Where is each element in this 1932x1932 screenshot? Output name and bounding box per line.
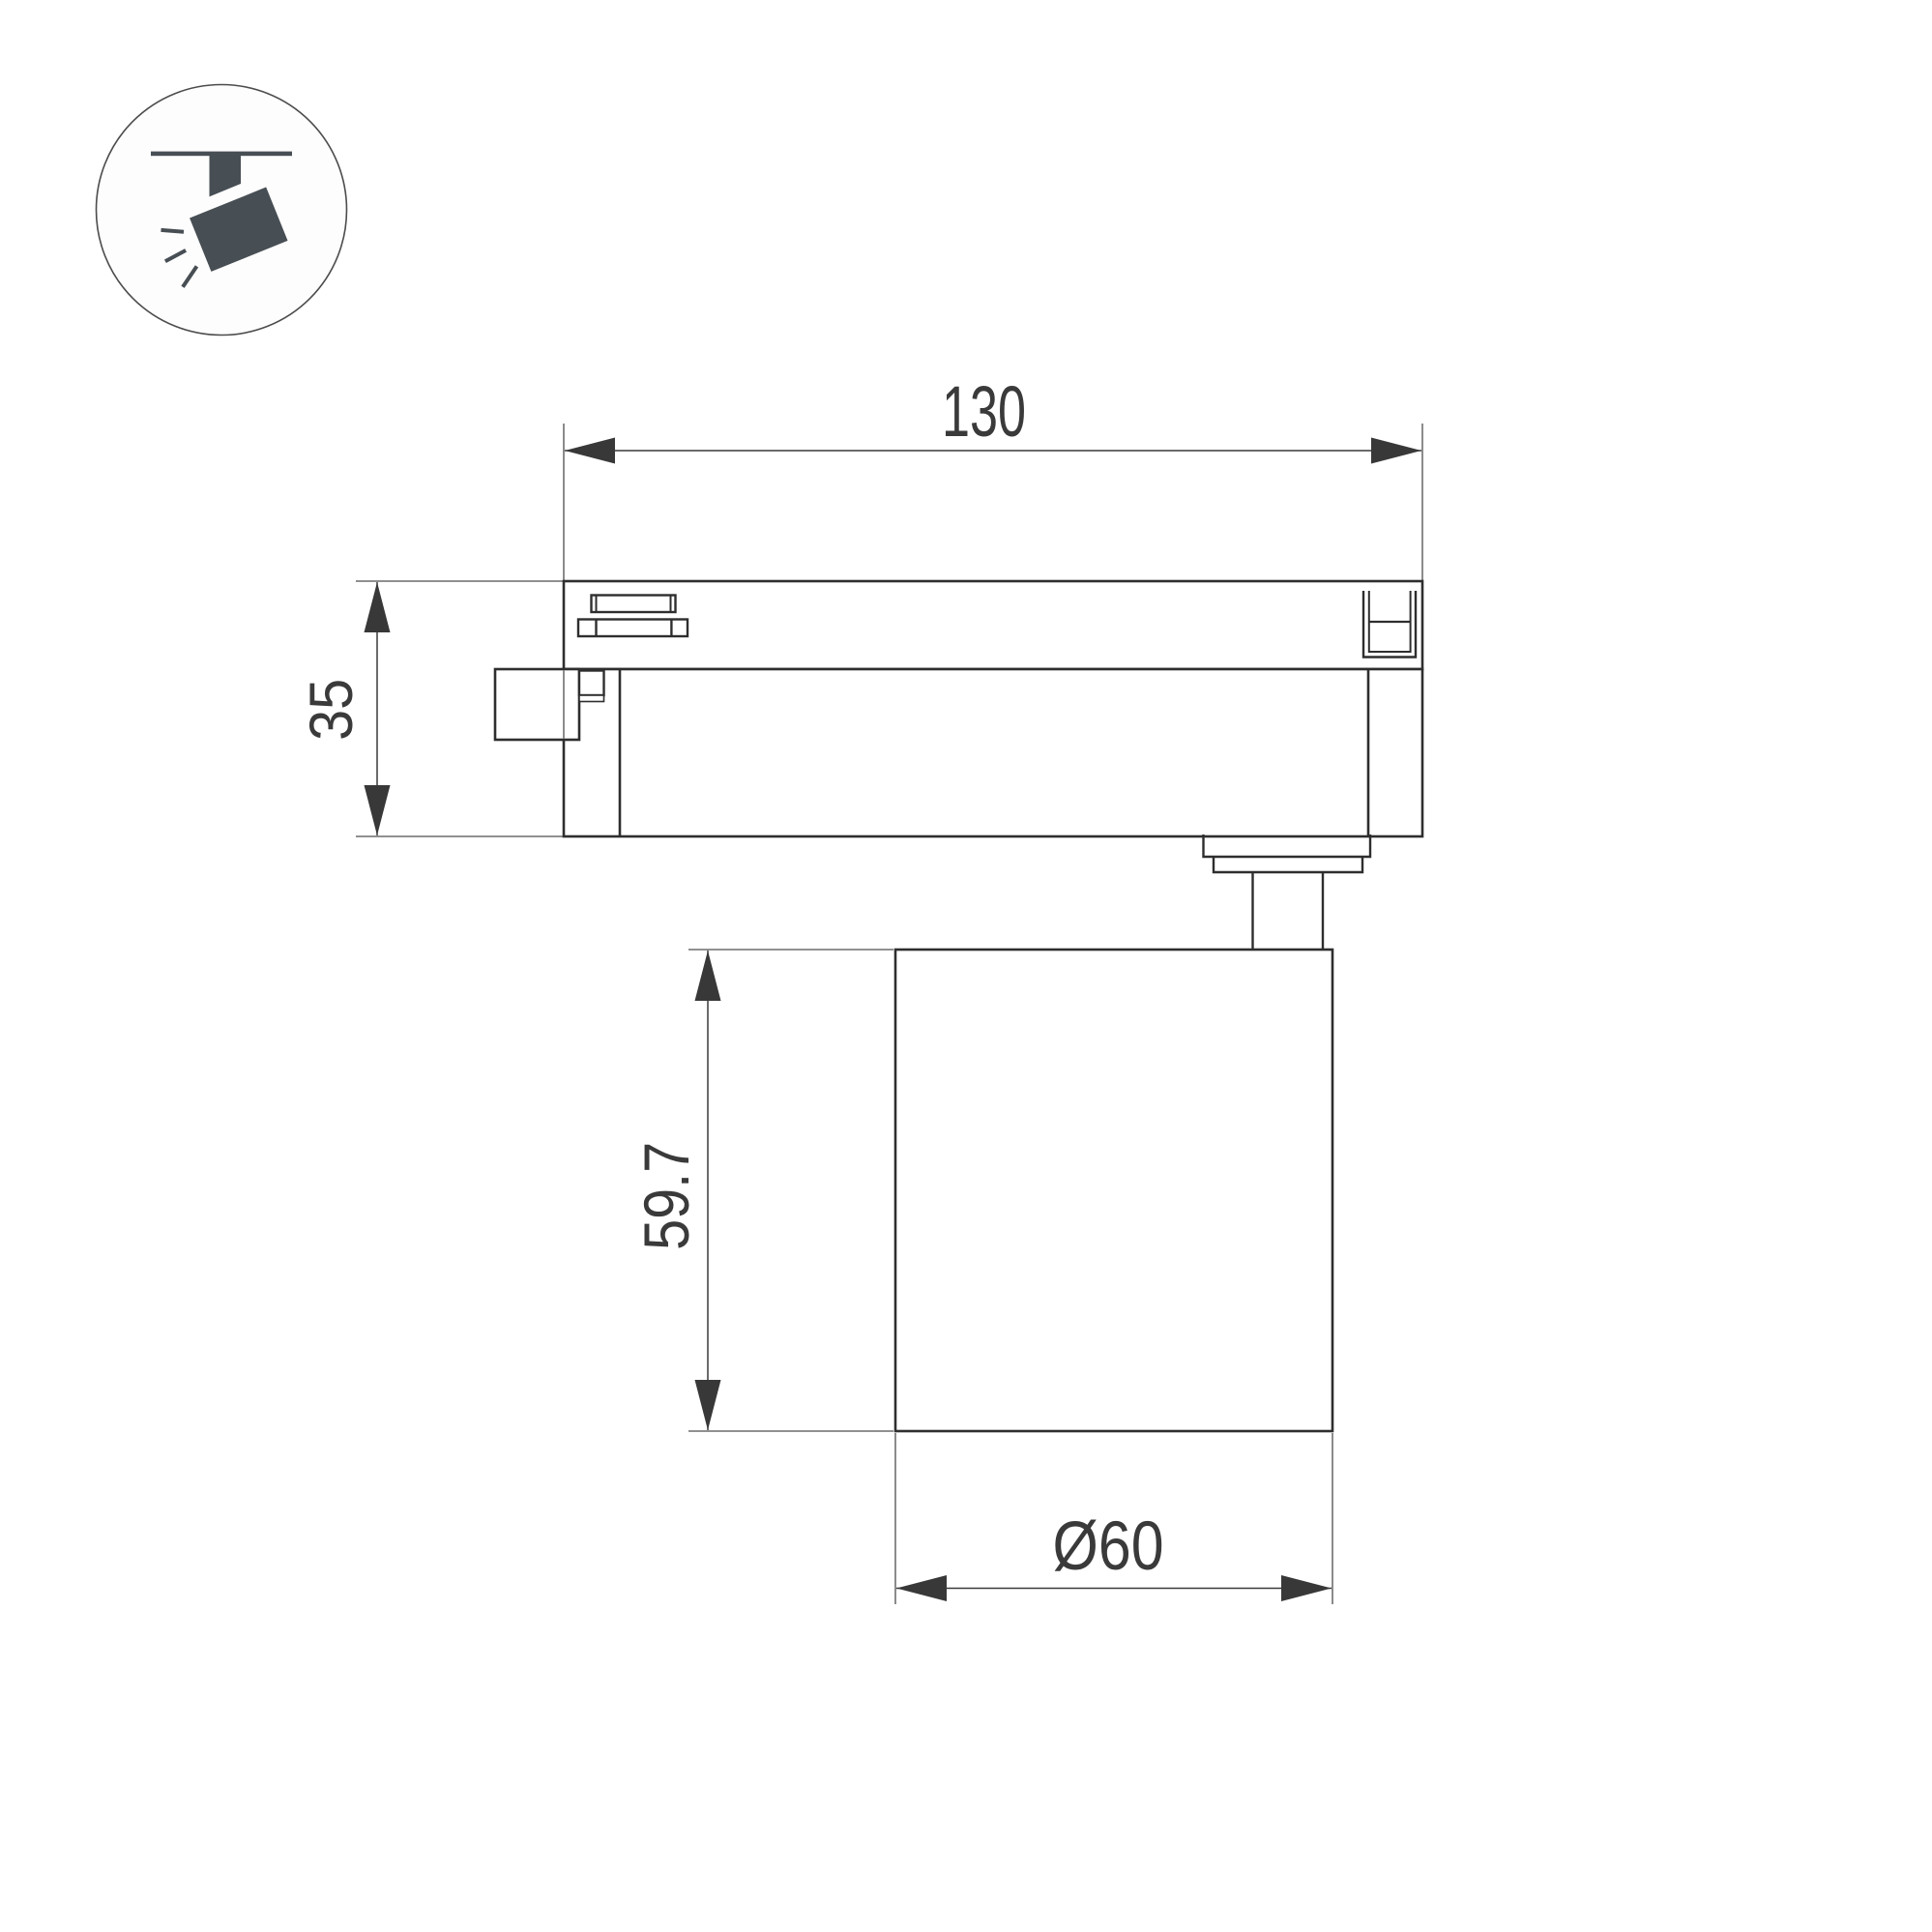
svg-text:59.7: 59.7: [630, 1142, 702, 1250]
svg-text:130: 130: [942, 371, 1026, 452]
svg-text:35: 35: [298, 679, 366, 741]
svg-text:Ø60: Ø60: [1053, 1508, 1164, 1585]
